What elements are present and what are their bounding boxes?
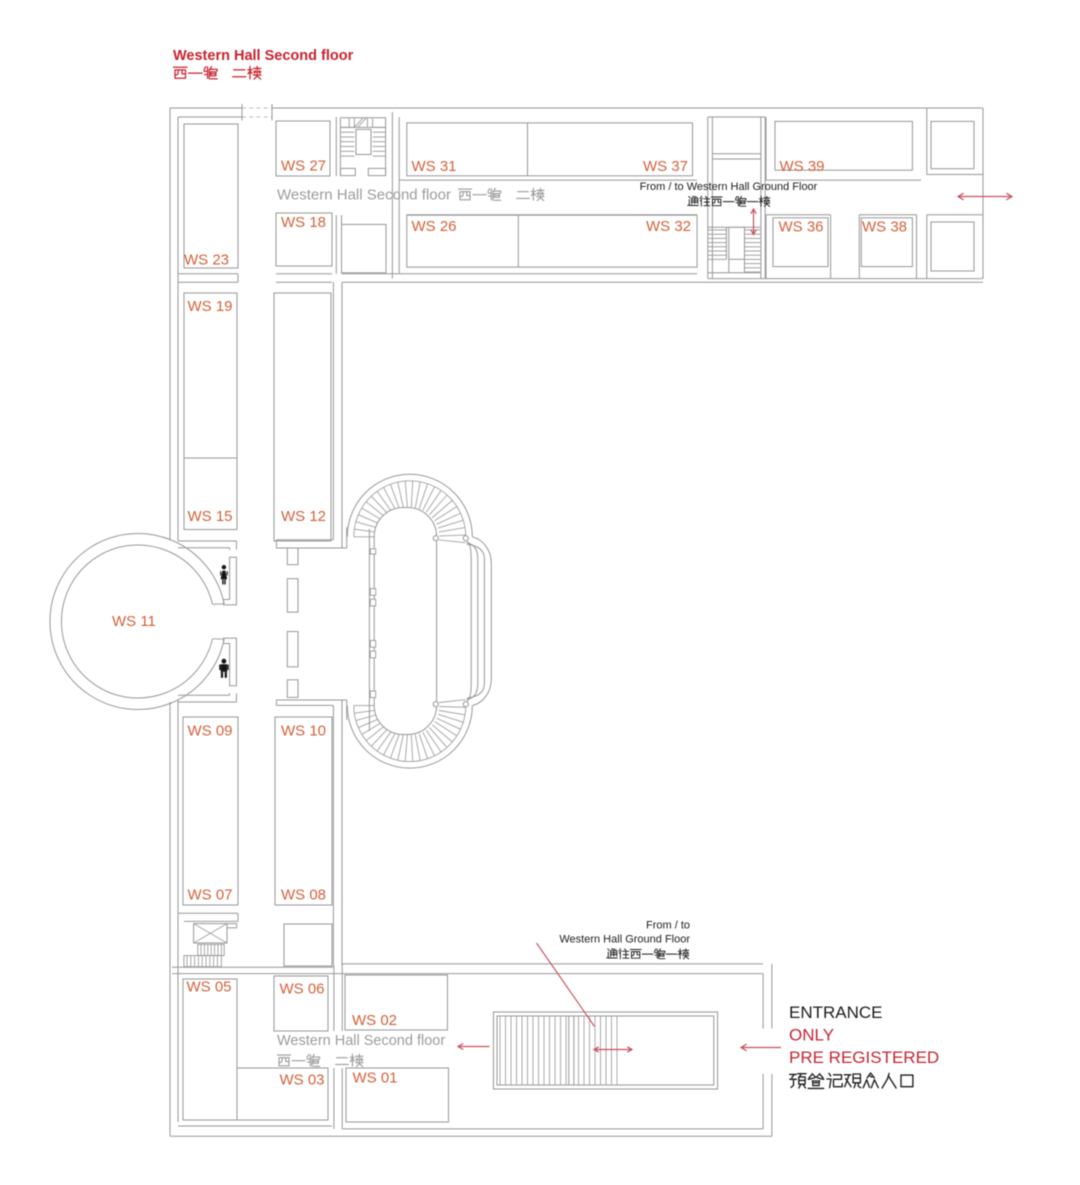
svg-text:WS 06: WS 06 xyxy=(280,981,325,998)
svg-text:WS 18: WS 18 xyxy=(281,214,326,231)
svg-text:WS 36: WS 36 xyxy=(779,219,824,236)
svg-text:WS 27: WS 27 xyxy=(281,158,326,175)
svg-text:WS 02: WS 02 xyxy=(352,1012,397,1029)
svg-text:WS 09: WS 09 xyxy=(188,723,233,740)
svg-text:WS 38: WS 38 xyxy=(862,219,907,236)
svg-text:WS 15: WS 15 xyxy=(188,508,233,525)
svg-text:WS 37: WS 37 xyxy=(643,158,688,175)
svg-text:WS 01: WS 01 xyxy=(353,1070,398,1087)
svg-text:WS 39: WS 39 xyxy=(780,158,825,175)
svg-text:WS 12: WS 12 xyxy=(281,508,326,525)
svg-text:WS 32: WS 32 xyxy=(646,218,691,235)
svg-text:From / to: From / to xyxy=(646,920,690,932)
svg-text:WS 19: WS 19 xyxy=(188,298,233,315)
svg-text:WS 26: WS 26 xyxy=(412,218,457,235)
svg-text:WS 07: WS 07 xyxy=(188,887,233,904)
svg-text:Western Hall Ground Floor: Western Hall Ground Floor xyxy=(559,934,690,946)
svg-text:WS 03: WS 03 xyxy=(280,1072,325,1089)
svg-text:WS 08: WS 08 xyxy=(281,887,326,904)
svg-text:Western Hall Second floor: Western Hall Second floor xyxy=(277,187,451,204)
svg-text:PRE REGISTERED: PRE REGISTERED xyxy=(789,1048,939,1067)
svg-text:Western Hall Second floor: Western Hall Second floor xyxy=(173,48,354,64)
svg-text:WS 05: WS 05 xyxy=(187,979,232,996)
svg-text:Western Hall Second floor: Western Hall Second floor xyxy=(277,1033,445,1049)
svg-text:WS 11: WS 11 xyxy=(112,613,156,630)
svg-text:From / to Western Hall Ground: From / to Western Hall Ground Floor xyxy=(640,181,818,193)
svg-text:ONLY: ONLY xyxy=(789,1026,834,1045)
svg-text:WS 23: WS 23 xyxy=(184,252,229,269)
svg-text:WS 10: WS 10 xyxy=(281,723,326,740)
svg-text:ENTRANCE: ENTRANCE xyxy=(789,1003,883,1022)
svg-text:WS 31: WS 31 xyxy=(412,158,457,175)
